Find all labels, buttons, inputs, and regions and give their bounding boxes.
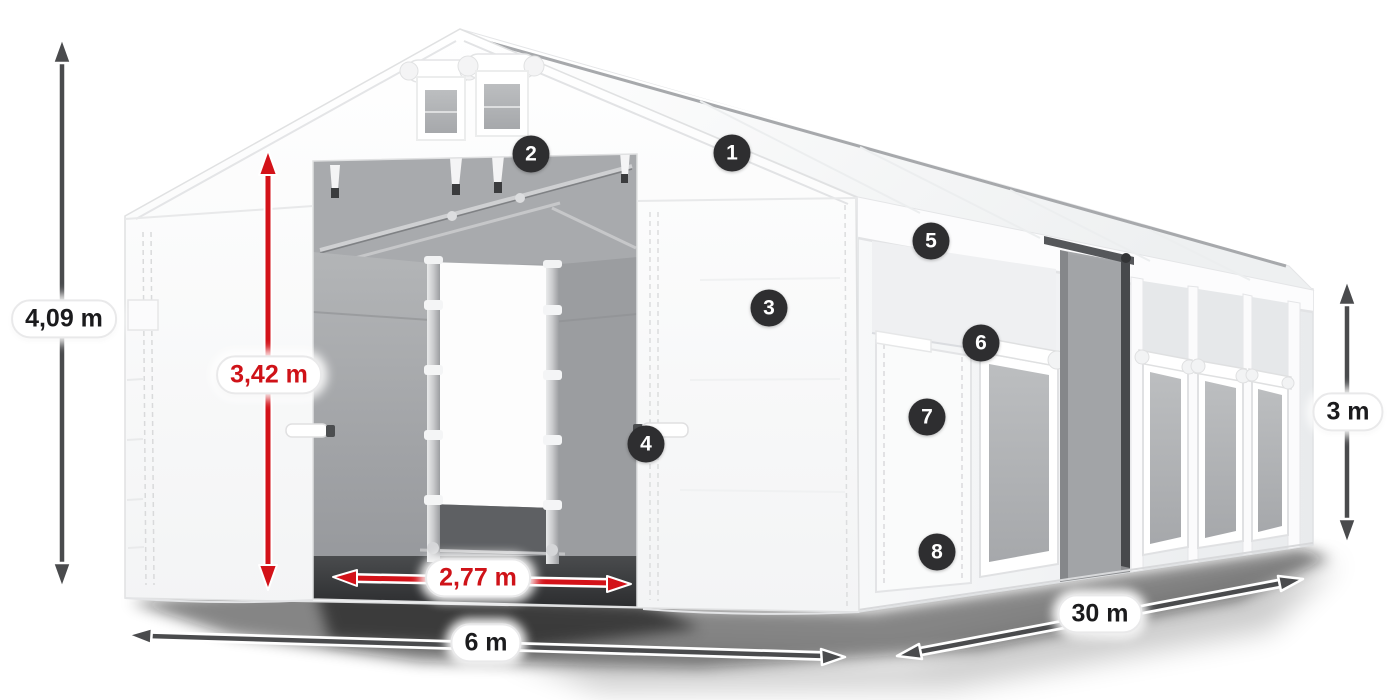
interior-left-panel [313,252,430,594]
hotspot-badge-3[interactable]: 3 [751,290,788,327]
entrance-interior [310,150,640,610]
side-window-far-1 [1135,350,1196,555]
hotspot-badge-8[interactable]: 8 [919,534,956,571]
dimension-label-entrance-width: 2,77 m [425,558,531,597]
door-handle-left [286,424,335,437]
hotspot-badge-2[interactable]: 2 [513,136,550,173]
hotspot-badge-6[interactable]: 6 [963,325,1000,362]
side-window-far-3 [1246,369,1294,541]
dimension-label-side-length: 30 m [1058,594,1143,633]
door-pole [1121,257,1130,568]
dimension-label-front-width: 6 m [450,623,521,662]
hotspot-badge-4[interactable]: 4 [628,426,665,463]
interior-through-opening [430,262,552,508]
dimension-label-total-height: 4,09 m [11,299,117,338]
dimension-label-side-wall-height: 3 m [1312,392,1383,431]
side-window-near [969,335,1066,577]
tent-illustration [0,0,1400,700]
dimension-label-entrance-height: 3,42 m [216,355,322,394]
hotspot-badge-7[interactable]: 7 [909,399,946,436]
interior-right-panel [552,257,637,600]
side-window-far-2 [1191,359,1250,548]
hotspot-badge-1[interactable]: 1 [714,135,751,172]
hotspot-badge-5[interactable]: 5 [913,223,950,260]
tent-diagram: 1 2 3 4 5 6 7 8 4,09 m 3,42 m 2,77 m 6 m… [0,0,1400,700]
